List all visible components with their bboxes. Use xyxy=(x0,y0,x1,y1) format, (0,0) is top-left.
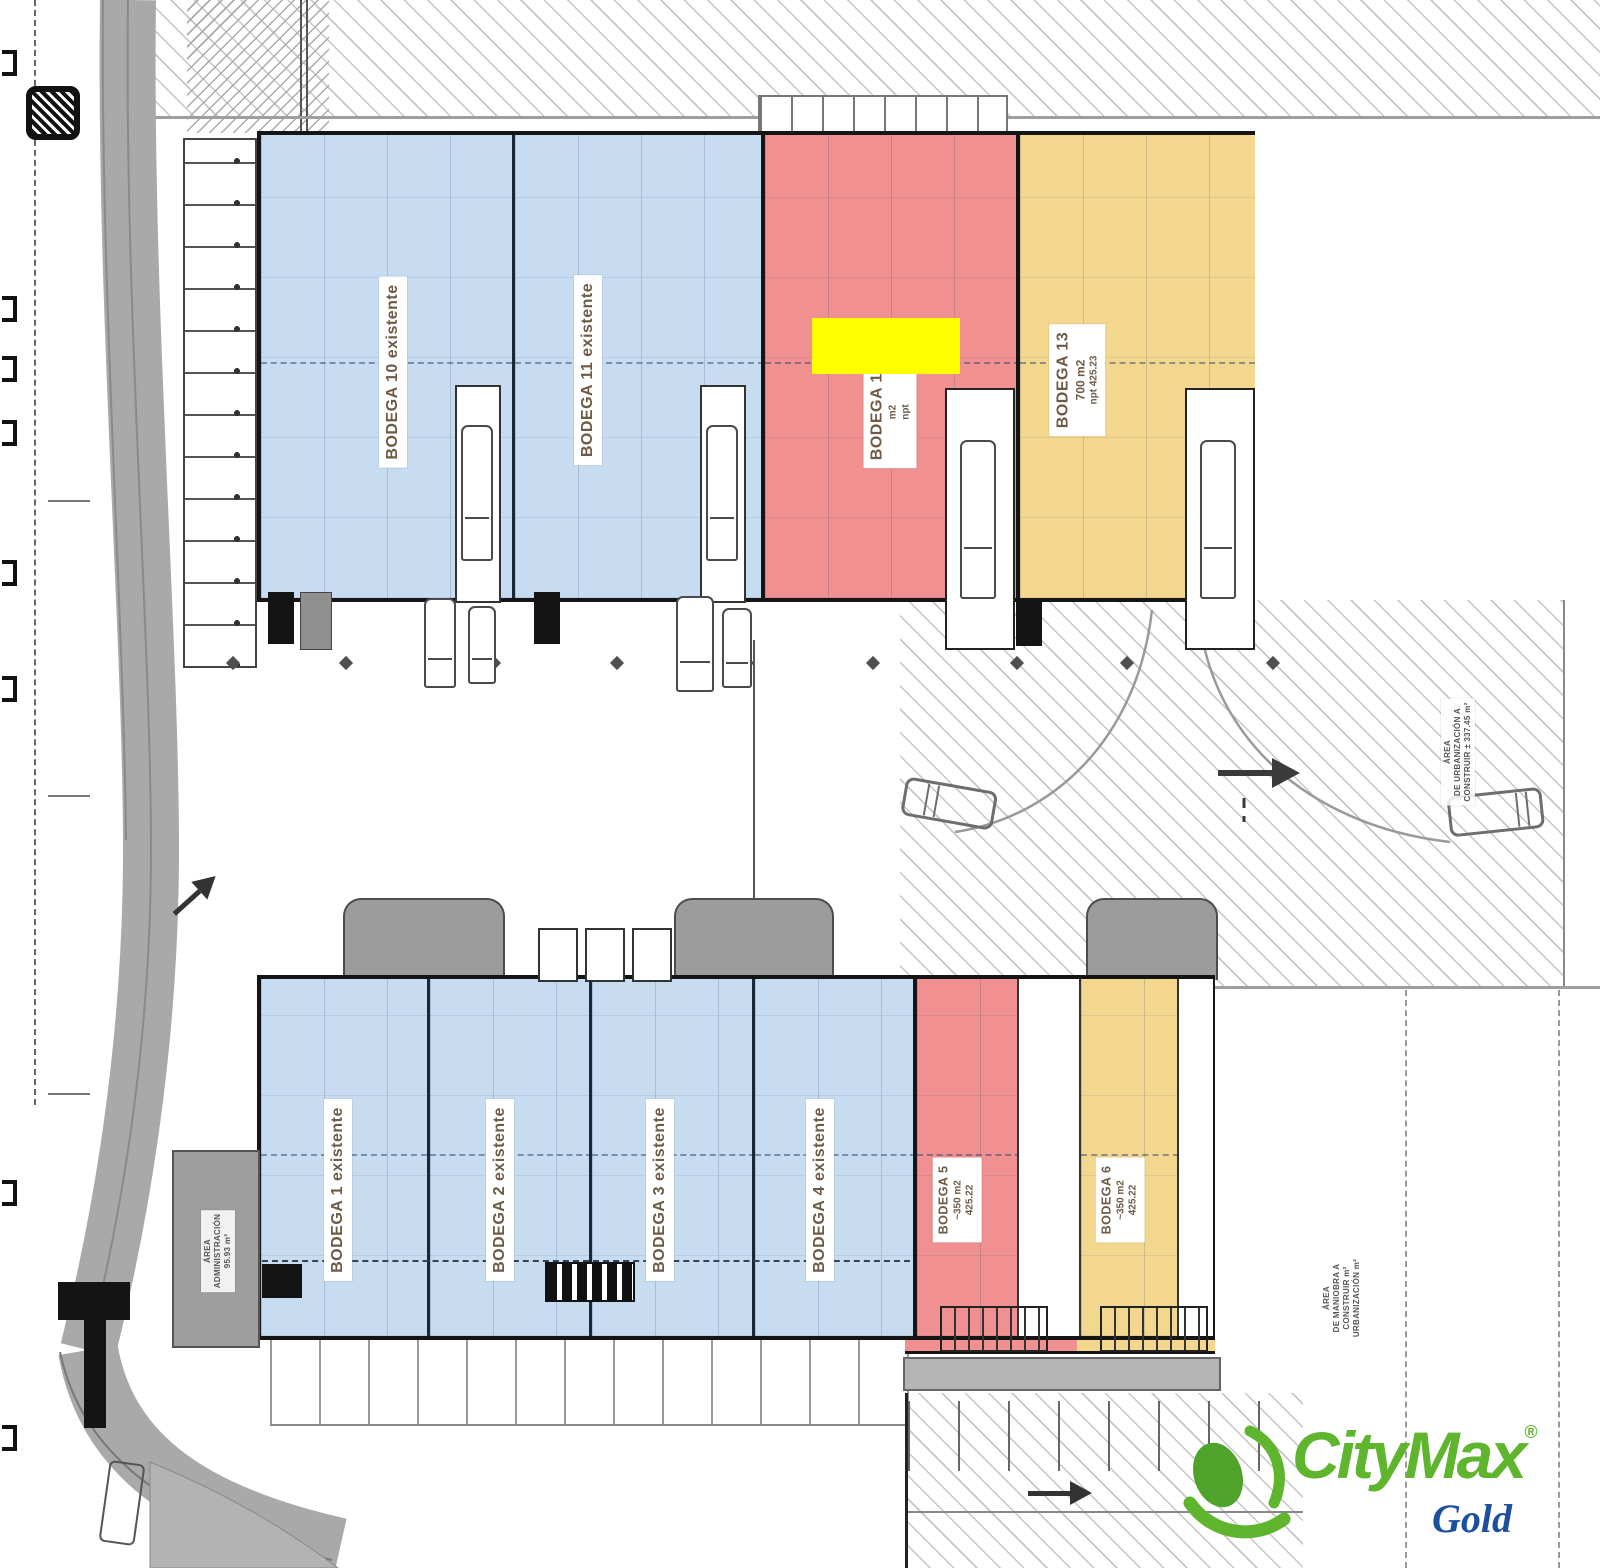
road-marker xyxy=(2,296,17,322)
gate-post xyxy=(84,1320,106,1428)
marker-diamond xyxy=(610,656,624,670)
administration-box: ÁREA ADMINISTRACIÓN 95.93 m² xyxy=(172,1150,260,1348)
maneuver-l4: URBANIZACIÓN m² xyxy=(1352,1259,1362,1337)
truck-icon xyxy=(722,608,752,688)
citymax-leaf-icon xyxy=(1180,1423,1295,1548)
bodega-5-area: ~350 m2 xyxy=(952,1166,965,1235)
bodega-1-text: BODEGA 1 existente xyxy=(328,1107,348,1273)
bodega-12-area: m2 xyxy=(888,364,901,460)
bodega-12-text: BODEGA 12 xyxy=(868,364,888,460)
plan-symbol xyxy=(26,86,80,140)
road-marker xyxy=(2,50,17,76)
rack-structure xyxy=(940,1306,1048,1352)
dock-door xyxy=(534,592,560,644)
dock-door xyxy=(268,592,294,644)
urbanization-l2: DE URBANIZACIÓN A xyxy=(1453,702,1463,801)
direction-arrow xyxy=(1028,1491,1070,1496)
marker-diamond xyxy=(866,656,880,670)
bodega-4-label: BODEGA 4 existente xyxy=(806,1099,834,1281)
bodega-3-text: BODEGA 3 existente xyxy=(650,1107,670,1273)
warehouse-block-bottom xyxy=(257,975,1215,1340)
bodega-10-label: BODEGA 10 existente xyxy=(379,276,407,467)
canopy-box xyxy=(632,928,672,982)
administration-note: ÁREA ADMINISTRACIÓN 95.93 m² xyxy=(201,1210,235,1292)
road-marker xyxy=(2,420,17,446)
car-icon xyxy=(902,778,997,829)
registered-mark: ® xyxy=(1524,1422,1537,1442)
maneuver-l3: CONSTRUIR m² xyxy=(1342,1259,1352,1337)
bodega-6-level: 425.22 xyxy=(1128,1166,1141,1235)
tick xyxy=(48,1093,90,1095)
bodega-1-label: BODEGA 1 existente xyxy=(324,1099,352,1281)
office-bodega-6 xyxy=(1177,979,1213,1336)
dock-door xyxy=(262,1264,302,1298)
bodega-5-label: BODEGA 5 ~350 m2 425.22 xyxy=(933,1158,982,1243)
loading-stall-column xyxy=(183,138,257,668)
gate-bar xyxy=(58,1282,130,1320)
canopy-tab xyxy=(674,898,834,980)
road-marker xyxy=(2,676,17,702)
maneuver-l1: ÁREA xyxy=(1322,1259,1332,1337)
maneuver-yard: ÁREA DE URBANIZACIÓN A CONSTRUIR ± 337.4… xyxy=(900,600,1565,988)
brand-tier: Gold xyxy=(1432,1495,1512,1542)
bodega-10-text: BODEGA 10 existente xyxy=(383,284,403,459)
bodega-13-area: 700 m2 xyxy=(1073,332,1088,428)
bodega-2-text: BODEGA 2 existente xyxy=(490,1107,510,1273)
truck-icon xyxy=(706,425,738,561)
bodega-12-level: npt xyxy=(900,364,913,460)
truck-icon xyxy=(461,425,493,561)
canopy-box xyxy=(585,928,625,982)
bodega-3-label: BODEGA 3 existente xyxy=(646,1099,674,1281)
site-plan: BODEGA 10 existente BODEGA 11 existente … xyxy=(0,0,1600,1568)
road-marker xyxy=(2,560,17,586)
office-bodega-5 xyxy=(1017,979,1081,1336)
truck-icon xyxy=(1200,440,1236,599)
brand-name-text: CityMax xyxy=(1292,1418,1524,1492)
tick xyxy=(48,500,90,502)
bodega-5-text: BODEGA 5 xyxy=(937,1166,953,1235)
road-marker xyxy=(2,1180,17,1206)
bodega-13-label: BODEGA 13 700 m2 npt 425.23 xyxy=(1049,324,1105,436)
bodega-13-text: BODEGA 13 xyxy=(1053,332,1073,428)
truck-icon xyxy=(960,440,996,599)
dock-door xyxy=(1016,600,1042,646)
highlight-rectangle xyxy=(812,318,960,374)
canopy-tab xyxy=(1086,898,1218,980)
parking-row-left xyxy=(270,1340,910,1426)
urbanization-note: ÁREA DE URBANIZACIÓN A CONSTRUIR ± 337.4… xyxy=(1441,698,1475,805)
brand-name: CityMax® xyxy=(1292,1417,1537,1493)
road-marker xyxy=(2,1425,17,1451)
urbanization-l1: ÁREA xyxy=(1443,702,1453,801)
urbanization-l3: CONSTRUIR ± 337.45 m² xyxy=(1463,702,1473,801)
bodega-6-text: BODEGA 6 xyxy=(1100,1166,1116,1235)
canopy-box xyxy=(538,928,578,982)
rack-structure xyxy=(1100,1306,1208,1352)
bodega-5-level: 425.22 xyxy=(965,1166,978,1235)
truck-icon xyxy=(424,598,456,688)
bodega-4-text: BODEGA 4 existente xyxy=(810,1107,830,1273)
canopy-strip xyxy=(758,95,1008,133)
bodega-2-label: BODEGA 2 existente xyxy=(486,1099,514,1281)
maneuver-l2: DE MANIOBRA A xyxy=(1332,1259,1342,1337)
citymax-logo: CityMax® Gold xyxy=(1180,1395,1600,1560)
bodega-13-level: npt 425.23 xyxy=(1088,332,1101,428)
bodega-11-label: BODEGA 11 existente xyxy=(574,275,602,465)
bodega-6-area: ~350 m2 xyxy=(1115,1166,1128,1235)
dock-platform xyxy=(903,1357,1221,1391)
administration-l3: 95.93 m² xyxy=(223,1214,233,1288)
unit-bodega-4 xyxy=(752,979,916,1336)
bodega-6-label: BODEGA 6 ~350 m2 425.22 xyxy=(1096,1158,1145,1243)
administration-l1: ÁREA xyxy=(203,1214,213,1288)
tick xyxy=(48,795,90,797)
truck-icon xyxy=(676,596,714,692)
canopy-tab xyxy=(343,898,505,980)
dock-door xyxy=(300,592,332,650)
dock-door-striped xyxy=(545,1262,635,1302)
road-marker xyxy=(2,356,17,382)
administration-l2: ADMINISTRACIÓN xyxy=(213,1214,223,1288)
maneuver-note: ÁREA DE MANIOBRA A CONSTRUIR m² URBANIZA… xyxy=(1320,1255,1364,1341)
truck-icon xyxy=(468,606,496,684)
bodega-11-text: BODEGA 11 existente xyxy=(578,283,598,457)
